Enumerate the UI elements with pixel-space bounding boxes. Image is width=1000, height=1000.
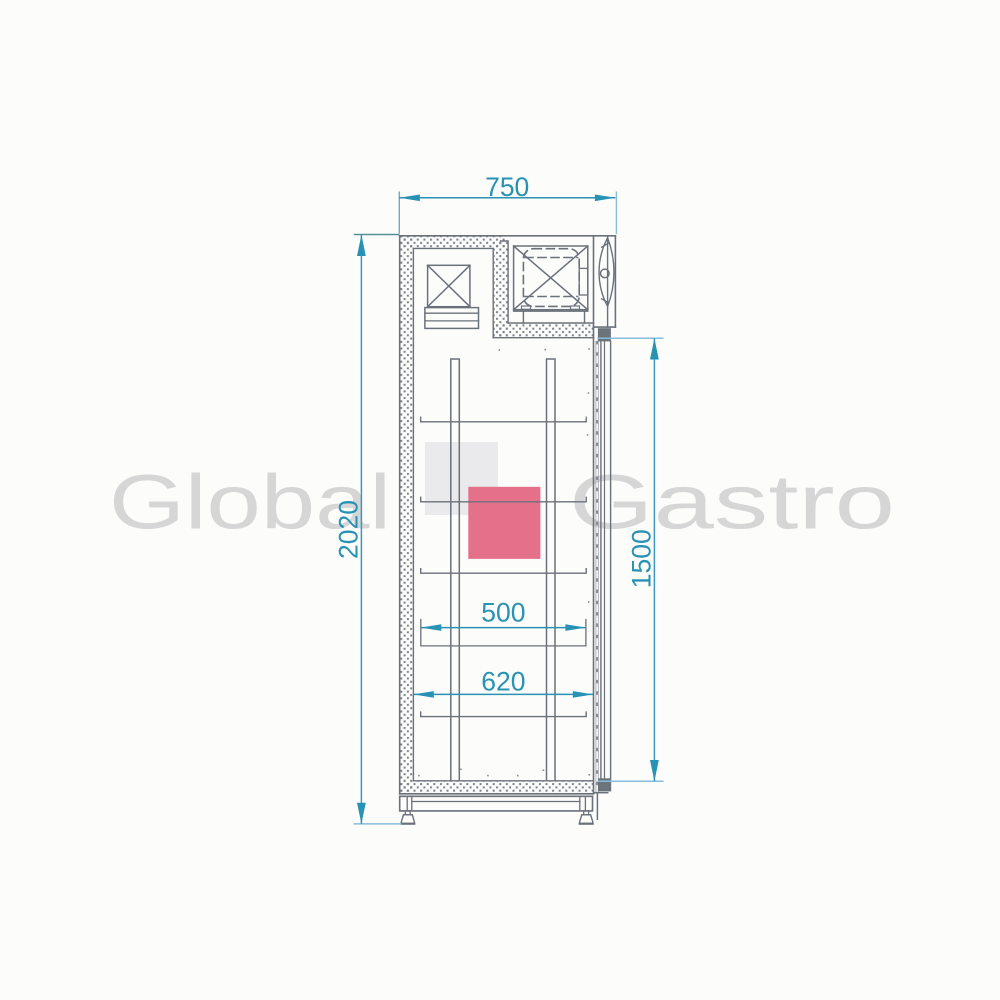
svg-text:2020: 2020	[334, 500, 364, 559]
svg-text:750: 750	[485, 172, 529, 202]
svg-text:1500: 1500	[627, 529, 657, 588]
svg-text:500: 500	[481, 598, 525, 628]
svg-text:Gastro: Gastro	[569, 460, 895, 546]
svg-text:620: 620	[481, 667, 525, 697]
